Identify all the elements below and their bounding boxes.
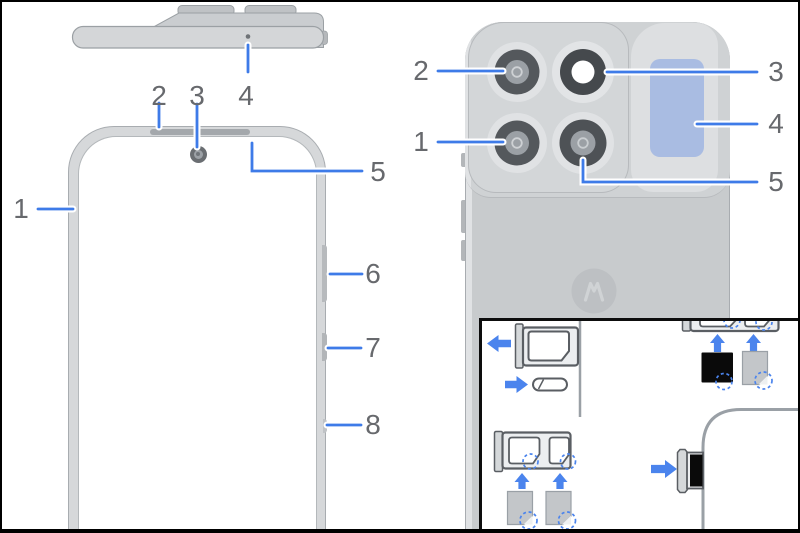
callout-label-back-1: 1 — [413, 128, 429, 156]
arrow-up-icon — [746, 334, 761, 352]
callout-label-back-4: 4 — [768, 110, 784, 138]
earpiece-speaker — [150, 129, 250, 135]
callout-label-back-2: 2 — [413, 57, 429, 85]
edge-button — [321, 31, 328, 45]
sim-eject-tool — [533, 379, 567, 391]
sim-in-tray — [690, 455, 703, 487]
top-edge-view — [73, 6, 328, 49]
sim-tray-inset — [479, 318, 800, 533]
sim-card — [743, 352, 773, 390]
insert-tray-phone-corner — [678, 410, 800, 533]
sim-card — [546, 492, 576, 530]
callout-label-front-3: 3 — [189, 82, 205, 110]
front-screen — [78, 136, 317, 533]
arrow-right-icon — [505, 376, 528, 393]
callout-label-back-5: 5 — [768, 168, 784, 196]
callout-label-front-8: 8 — [365, 411, 381, 439]
arrow-up-icon — [553, 473, 568, 489]
partial-dual-tray — [683, 321, 779, 331]
arrow-up-icon — [515, 473, 530, 489]
front-camera — [190, 146, 207, 163]
callout-label-back-3: 3 — [768, 58, 784, 86]
sim-slot-edge — [323, 419, 327, 433]
volume-button — [322, 245, 327, 302]
callout-label-front-7: 7 — [365, 334, 381, 362]
front-phone-frame — [68, 126, 326, 533]
power-button — [322, 333, 327, 361]
back-edge-slot — [461, 153, 465, 167]
top-edge-bar — [73, 27, 324, 49]
callout-label-front-4: 4 — [238, 82, 254, 110]
back-slab — [116, 13, 324, 48]
arrow-up-icon — [710, 334, 725, 352]
figure-canvas: 1 2 3 4 5 6 7 8 2 3 1 4 5 — [0, 0, 800, 533]
eject-tray — [516, 324, 579, 368]
callout-label-front-1: 1 — [13, 195, 29, 223]
microsd-card — [702, 353, 734, 390]
camera-module — [468, 22, 629, 193]
back-volume-button — [461, 200, 466, 233]
arrow-left-icon — [487, 335, 511, 352]
microphone-hole — [246, 34, 251, 39]
back-power-button — [461, 240, 466, 261]
callout-label-front-5: 5 — [370, 158, 386, 186]
flash-window — [650, 59, 704, 157]
callout-label-front-2: 2 — [151, 82, 167, 110]
camera-bump — [245, 6, 296, 16]
dual-sim-tray — [495, 432, 576, 472]
arrow-right-icon — [651, 460, 677, 478]
sim-card — [508, 492, 538, 530]
sim-inset-graphics — [482, 321, 800, 533]
camera-bump — [178, 6, 234, 16]
callout-label-front-6: 6 — [365, 260, 381, 288]
